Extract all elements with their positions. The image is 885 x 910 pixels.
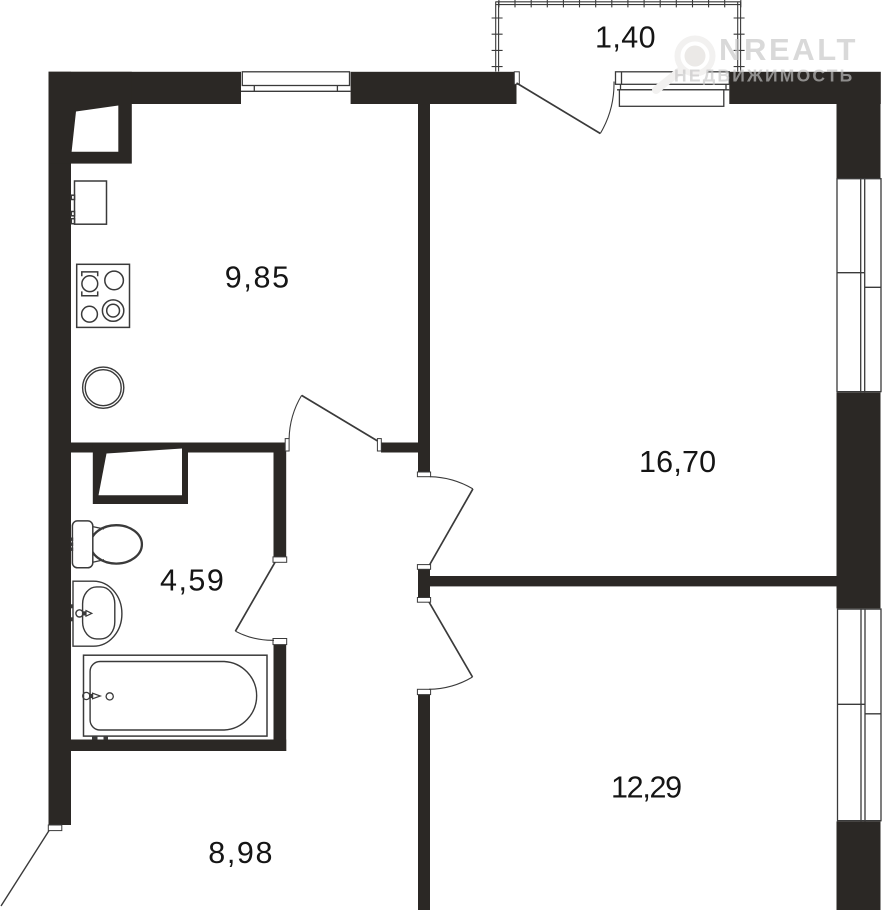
svg-text:9,85: 9,85 [225, 261, 291, 295]
svg-text:4,59: 4,59 [160, 564, 225, 598]
svg-text:16,70: 16,70 [639, 445, 716, 479]
svg-text:1,40: 1,40 [595, 21, 656, 55]
svg-text:12,29: 12,29 [611, 771, 681, 805]
svg-text:НЕДВИЖИМОСТЬ: НЕДВИЖИМОСТЬ [674, 66, 854, 86]
svg-text:NREALT: NREALT [719, 32, 858, 67]
svg-text:8,98: 8,98 [208, 836, 274, 870]
